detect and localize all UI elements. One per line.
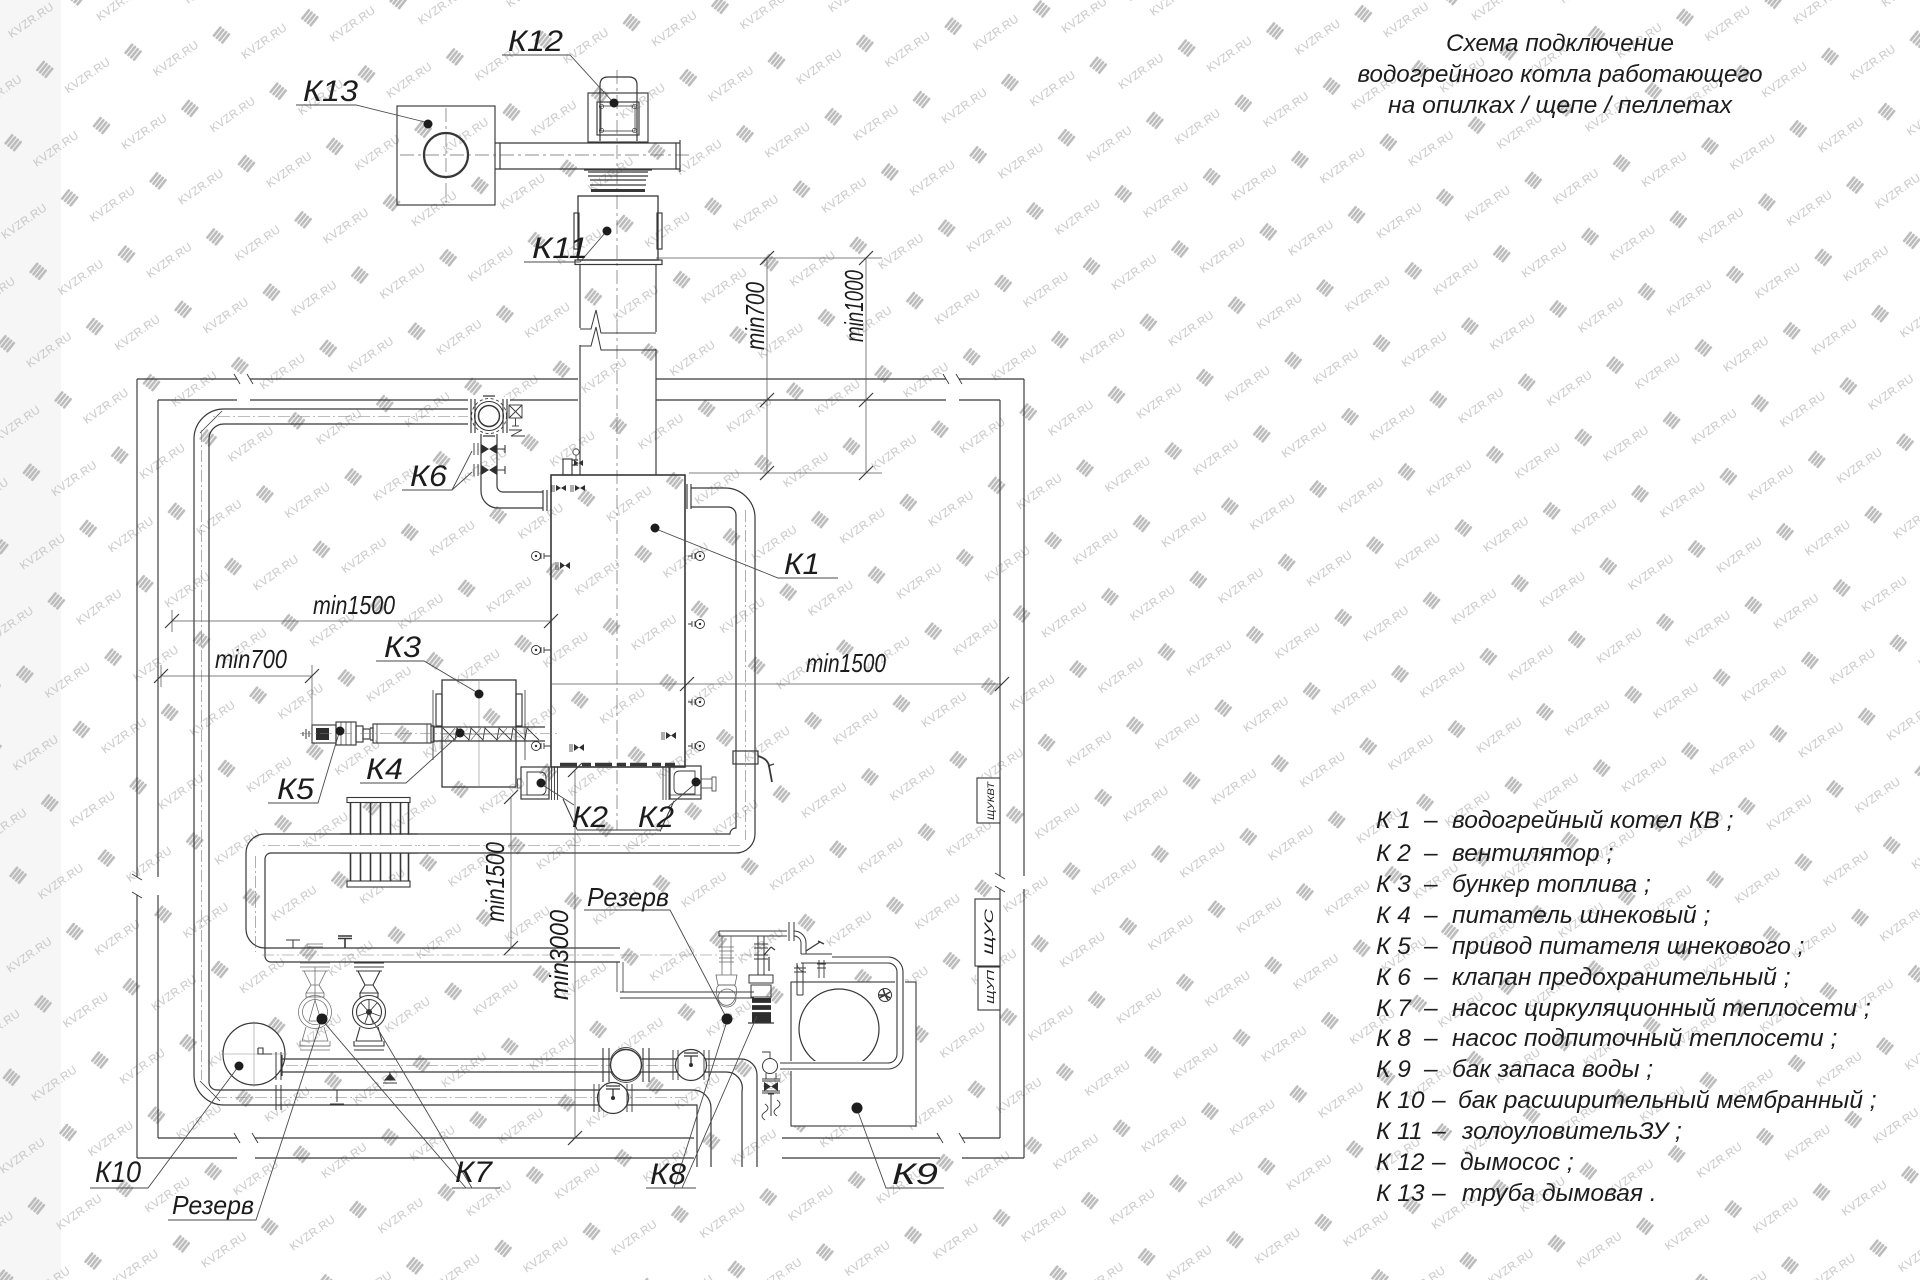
svg-text:Схема подключение: Схема подключение: [1446, 30, 1674, 57]
svg-text:ЩУКВТ: ЩУКВТ: [986, 780, 996, 820]
svg-text:min3000: min3000: [544, 910, 574, 1000]
svg-text:водогрейного котла работающего: водогрейного котла работающего: [1358, 61, 1763, 88]
svg-text:К 12–дымосос ;: К 12–дымосос ;: [1376, 1149, 1574, 1176]
svg-text:min1500: min1500: [806, 648, 886, 678]
svg-text:К 1–водогрейный котел КВ ;: К 1–водогрейный котел КВ ;: [1376, 807, 1733, 834]
svg-text:К2: К2: [638, 801, 674, 834]
svg-text:min1000: min1000: [839, 270, 869, 342]
svg-text:min1500: min1500: [480, 842, 510, 922]
svg-text:К11: К11: [532, 232, 588, 265]
svg-text:К4: К4: [366, 753, 403, 786]
svg-text:К 13–труба дымовая .: К 13–труба дымовая .: [1376, 1180, 1657, 1207]
svg-text:К5: К5: [277, 773, 314, 806]
svg-text:К10: К10: [95, 1156, 141, 1189]
svg-text:min1500: min1500: [313, 590, 395, 620]
svg-text:ЩУС: ЩУС: [982, 908, 996, 955]
svg-text:К7: К7: [455, 1156, 493, 1189]
svg-text:К8: К8: [650, 1158, 686, 1191]
svg-text:К6: К6: [410, 460, 447, 493]
svg-text:min700: min700: [215, 644, 287, 674]
svg-text:К2: К2: [572, 801, 608, 834]
svg-text:К 11–золоуловительЗУ ;: К 11–золоуловительЗУ ;: [1376, 1118, 1682, 1145]
svg-text:К 4–питатель шнековый ;: К 4–питатель шнековый ;: [1376, 902, 1710, 929]
svg-text:ЩУП: ЩУП: [986, 969, 997, 1004]
svg-text:К3: К3: [384, 631, 421, 664]
svg-text:min700: min700: [740, 282, 770, 350]
svg-text:К12: К12: [508, 25, 563, 58]
svg-text:Резерв: Резерв: [172, 1190, 254, 1220]
svg-text:К13: К13: [303, 75, 358, 108]
svg-text:К1: К1: [784, 548, 820, 581]
svg-text:К9: К9: [892, 1158, 938, 1191]
svg-text:на опилках / щепе / пеллетах: на опилках / щепе / пеллетах: [1388, 92, 1733, 119]
svg-text:Резерв: Резерв: [587, 882, 669, 912]
